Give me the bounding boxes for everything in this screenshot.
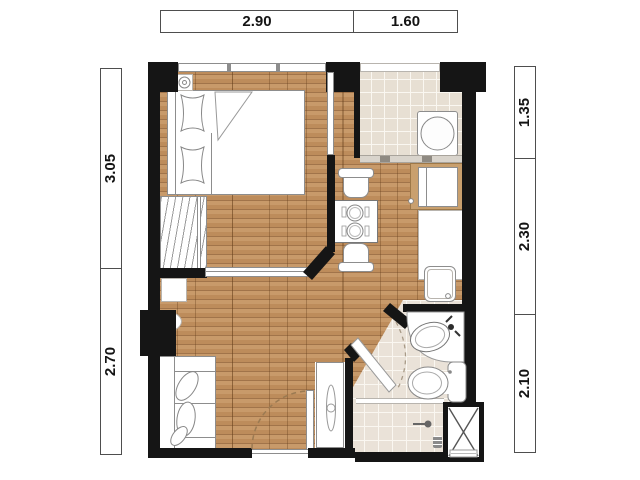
ceiling-light-ring bbox=[179, 77, 190, 88]
shower-mixer-icon bbox=[425, 421, 432, 428]
toilet-flush-button bbox=[448, 370, 452, 374]
bathroom-door-swing-arc bbox=[396, 322, 406, 388]
plan-symbol-overlay bbox=[0, 0, 640, 480]
entry-door-swing-arc bbox=[252, 391, 308, 449]
pillow-icon bbox=[181, 95, 204, 131]
cutlery-icon bbox=[342, 207, 346, 217]
sofa-cushion bbox=[171, 368, 202, 404]
counter-knob bbox=[409, 199, 414, 204]
pillow-icon bbox=[181, 147, 204, 183]
cutlery-icon bbox=[365, 226, 369, 236]
bathroom-door-leaf bbox=[351, 338, 396, 392]
cutlery-icon bbox=[365, 207, 369, 217]
sink-drain bbox=[446, 294, 451, 299]
ceiling-light-dot bbox=[183, 81, 187, 85]
washing-machine-drum bbox=[421, 117, 454, 150]
floor-plan-canvas: 2.90 1.60 3.05 2.70 1.35 2.30 2.10 bbox=[0, 0, 640, 480]
blanket-fold bbox=[215, 92, 252, 140]
faucet-icon bbox=[448, 324, 454, 330]
console-object-center bbox=[327, 404, 335, 412]
wall-bedroom-angled bbox=[303, 246, 335, 280]
cutlery-icon bbox=[342, 226, 346, 236]
